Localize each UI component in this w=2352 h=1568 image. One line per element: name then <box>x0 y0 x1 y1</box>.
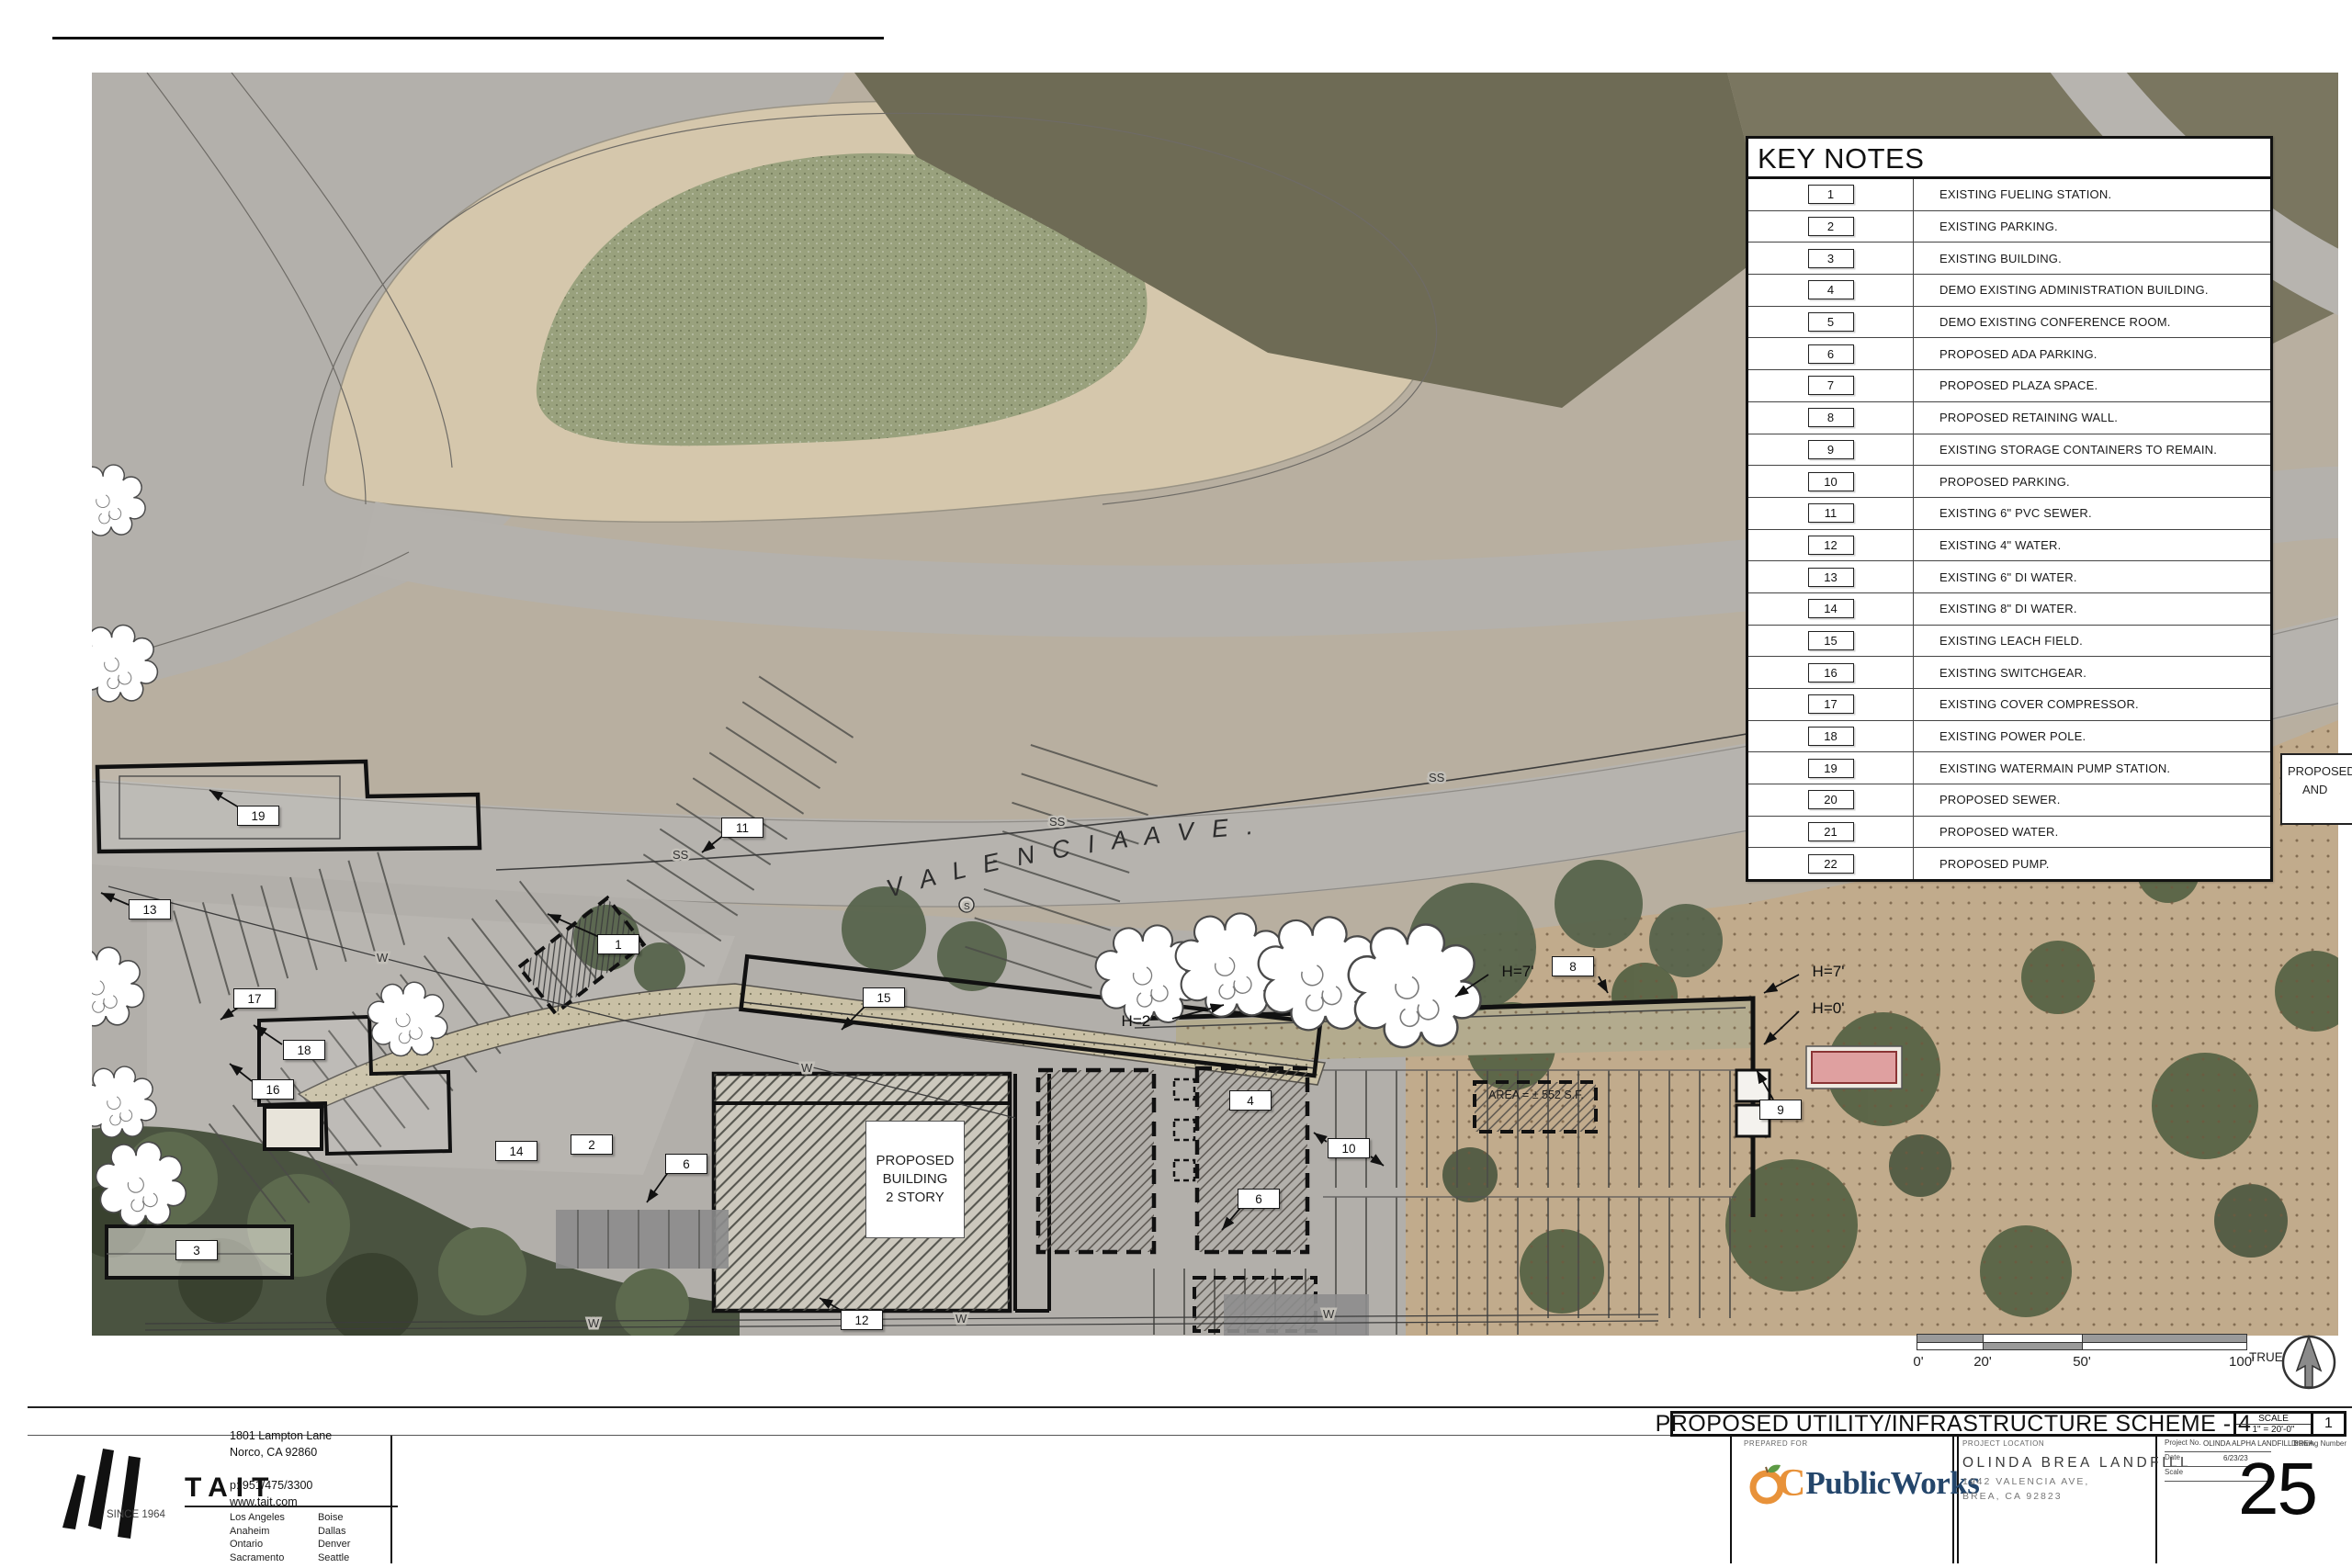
keynote-number-cell: 16 <box>1748 657 1914 688</box>
keynote-number: 13 <box>1808 568 1854 587</box>
keynote-ref-18: 18 <box>283 1040 325 1060</box>
keynote-text: EXISTING BUILDING. <box>1914 243 2270 274</box>
keynote-number-cell: 6 <box>1748 338 1914 369</box>
svg-text:W: W <box>801 1061 813 1075</box>
tait-website[interactable]: www.tait.com <box>230 1495 312 1511</box>
proposed-building-label-line3: 2 STORY <box>886 1189 944 1207</box>
manhole-label: S <box>964 902 970 912</box>
keynote-row: 13EXISTING 6" DI WATER. <box>1748 560 2270 592</box>
keynote-ref-4: 4 <box>1229 1090 1272 1111</box>
keynote-number: 8 <box>1808 408 1854 427</box>
keynote-number-cell: 4 <box>1748 275 1914 306</box>
proposed-building-label-line2: BUILDING <box>883 1170 948 1189</box>
plaza-area-label: AREA = ± 552 S.F. <box>1476 1080 1597 1132</box>
tait-cities-left: Los Angeles Anaheim Ontario Sacramento <box>230 1511 285 1565</box>
keynote-text: PROPOSED PUMP. <box>1914 848 2270 879</box>
keynote-ref-10: 10 <box>1328 1138 1370 1158</box>
tait-city: Ontario <box>230 1538 285 1551</box>
keynote-text: PROPOSED WATER. <box>1914 817 2270 848</box>
keynote-number-cell: 21 <box>1748 817 1914 848</box>
partial-note-box: PROPOSED AND <box>2280 753 2352 825</box>
keynote-number: 2 <box>1808 217 1854 236</box>
keynote-number: 6 <box>1808 344 1854 364</box>
partial-note-line1: PROPOSED <box>2288 762 2352 781</box>
partial-note-line2: AND <box>2288 781 2352 799</box>
keynote-row: 14EXISTING 8" DI WATER. <box>1748 592 2270 625</box>
tait-cities-right: Boise Dallas Denver Seattle <box>318 1511 350 1565</box>
scale-label: SCALE <box>2236 1414 2311 1424</box>
north-arrow-icon <box>2278 1332 2339 1393</box>
project-address-line1: 1942 VALENCIA AVE, <box>1962 1474 2152 1489</box>
keynote-row: 17EXISTING COVER COMPRESSOR. <box>1748 688 2270 720</box>
keynote-number: 20 <box>1808 790 1854 809</box>
keynote-text: EXISTING SWITCHGEAR. <box>1914 657 2270 688</box>
keynote-row: 1EXISTING FUELING STATION. <box>1748 179 2270 210</box>
scale-value: 1" = 20'-0" <box>2236 1424 2311 1435</box>
keynote-row: 12EXISTING 4" WATER. <box>1748 529 2270 561</box>
svg-text:W: W <box>955 1312 967 1325</box>
ada-parking-stalls <box>556 1210 729 1269</box>
keynote-number-cell: 9 <box>1748 434 1914 466</box>
keynote-number-cell: 12 <box>1748 530 1914 561</box>
keynote-number-cell: 2 <box>1748 211 1914 243</box>
tait-city: Seattle <box>318 1551 350 1565</box>
bottom-section-divider <box>28 1406 2352 1408</box>
keynote-ref-16: 16 <box>252 1079 294 1100</box>
keynote-text: EXISTING LEACH FIELD. <box>1914 626 2270 657</box>
keynote-number-cell: 11 <box>1748 498 1914 529</box>
keynote-number-cell: 22 <box>1748 848 1914 879</box>
building-switchgear <box>265 1107 322 1149</box>
keynote-number: 21 <box>1808 822 1854 841</box>
tait-address-line1: 1801 Lampton Lane <box>230 1428 332 1445</box>
key-notes-table: KEY NOTES 1EXISTING FUELING STATION. 2EX… <box>1746 136 2273 882</box>
keynote-row: 4DEMO EXISTING ADMINISTRATION BUILDING. <box>1748 274 2270 306</box>
keynote-row: 21PROPOSED WATER. <box>1748 816 2270 848</box>
keynote-text: PROPOSED PARKING. <box>1914 466 2270 497</box>
oc-public-works-logo: C PublicWorks <box>1747 1461 1979 1506</box>
keynote-number-cell: 13 <box>1748 561 1914 592</box>
key-notes-rows: 1EXISTING FUELING STATION. 2EXISTING PAR… <box>1748 179 2270 879</box>
tait-address: 1801 Lampton Lane Norco, CA 92860 <box>230 1428 332 1461</box>
tait-city: Boise <box>318 1511 350 1525</box>
scale-bar: 0' 20' 50' 100' <box>1917 1334 2247 1372</box>
keynote-number: 11 <box>1808 503 1854 523</box>
keynote-number: 14 <box>1808 599 1854 618</box>
tait-city: Sacramento <box>230 1551 285 1565</box>
scale-tick-0: 0' <box>1913 1354 1923 1370</box>
scale-tick-20: 20' <box>1973 1354 1992 1370</box>
proposed-pump-highlight <box>1812 1052 1896 1083</box>
detail-number-cell: 1 <box>2313 1411 2346 1437</box>
keynote-number: 10 <box>1808 472 1854 491</box>
keynote-text: PROPOSED PLAZA SPACE. <box>1914 370 2270 401</box>
scale-tick-50: 50' <box>2073 1354 2091 1370</box>
keynote-text: EXISTING FUELING STATION. <box>1914 179 2270 210</box>
keynote-ref-14: 14 <box>495 1141 537 1161</box>
keynote-text: EXISTING 6" DI WATER. <box>1914 561 2270 592</box>
oc-logo-wordmark: PublicWorks <box>1805 1465 1979 1502</box>
tait-since: SINCE 1964 <box>107 1509 165 1520</box>
key-notes-title: KEY NOTES <box>1748 139 2270 179</box>
keynote-number: 15 <box>1808 631 1854 650</box>
drawing-title: PROPOSED UTILITY/INFRASTRUCTURE SCHEME -… <box>1670 1411 2236 1437</box>
keynote-row: 3EXISTING BUILDING. <box>1748 242 2270 274</box>
wall-height-label-h7-center: H=7' <box>1502 963 1534 981</box>
keynote-number: 9 <box>1808 440 1854 459</box>
proposed-building-label: PROPOSED BUILDING 2 STORY <box>865 1121 965 1238</box>
keynote-row: 15EXISTING LEACH FIELD. <box>1748 625 2270 657</box>
keynote-number-cell: 14 <box>1748 593 1914 625</box>
keynote-row: 22PROPOSED PUMP. <box>1748 847 2270 879</box>
ada-parking-pad-east <box>1224 1294 1369 1336</box>
keynote-text: EXISTING PARKING. <box>1914 211 2270 243</box>
svg-text:W: W <box>1323 1307 1335 1321</box>
keynote-ref-3: 3 <box>175 1240 218 1260</box>
demo-admin-building-west <box>1038 1070 1154 1252</box>
wall-height-label-h7-right: H=7' <box>1813 963 1845 981</box>
svg-text:SS: SS <box>1049 815 1066 829</box>
drawing-sheet: { "page": { "key_notes": { "title": "KEY… <box>0 0 2352 1568</box>
keynote-number: 19 <box>1808 759 1854 778</box>
keynote-text: EXISTING WATERMAIN PUMP STATION. <box>1914 752 2270 784</box>
oc-logo-c: C <box>1778 1461 1805 1506</box>
keynote-ref-12: 12 <box>841 1310 883 1330</box>
title-block-divider-1 <box>390 1436 392 1563</box>
tait-city: Anaheim <box>230 1525 285 1539</box>
keynote-number: 12 <box>1808 536 1854 555</box>
svg-text:W: W <box>377 951 389 964</box>
keynote-number-cell: 7 <box>1748 370 1914 401</box>
keynote-text: EXISTING 8" DI WATER. <box>1914 593 2270 625</box>
scale-bar-ticks: 0' 20' 50' 100' <box>1917 1354 2247 1372</box>
tait-city: Dallas <box>318 1525 350 1539</box>
keynote-number-cell: 19 <box>1748 752 1914 784</box>
keynote-number-cell: 1 <box>1748 179 1914 210</box>
keynote-text: EXISTING STORAGE CONTAINERS TO REMAIN. <box>1914 434 2270 466</box>
keynote-row: 16EXISTING SWITCHGEAR. <box>1748 656 2270 688</box>
tait-logo-icon <box>55 1438 175 1540</box>
keynote-ref-1: 1 <box>597 934 639 954</box>
keynote-text: EXISTING POWER POLE. <box>1914 721 2270 752</box>
keynote-number-cell: 8 <box>1748 402 1914 434</box>
prepared-for-label: PREPARED FOR <box>1744 1439 1808 1448</box>
keynote-ref-2: 2 <box>571 1134 613 1155</box>
keynote-number-cell: 3 <box>1748 243 1914 274</box>
tait-city: Denver <box>318 1538 350 1551</box>
tait-address-line2: Norco, CA 92860 <box>230 1445 332 1461</box>
keynote-text: EXISTING 6" PVC SEWER. <box>1914 498 2270 529</box>
svg-text:SS: SS <box>673 848 689 862</box>
keynote-ref-19: 19 <box>237 806 279 826</box>
keynote-number: 7 <box>1808 376 1854 395</box>
title-block-divider-2 <box>1730 1436 1732 1563</box>
keynote-text: EXISTING COVER COMPRESSOR. <box>1914 689 2270 720</box>
drawing-scale-cell: SCALE 1" = 20'-0" <box>2236 1411 2313 1437</box>
keynote-ref-8: 8 <box>1552 956 1594 976</box>
prepared-for-block: PREPARED FOR C PublicWorks <box>1736 1436 1948 1563</box>
keynote-row: 11EXISTING 6" PVC SEWER. <box>1748 497 2270 529</box>
drawing-title-bar: PROPOSED UTILITY/INFRASTRUCTURE SCHEME -… <box>1670 1411 2346 1437</box>
keynote-row: 7PROPOSED PLAZA SPACE. <box>1748 369 2270 401</box>
keynote-number: 16 <box>1808 663 1854 682</box>
project-info-block: Project No. OLINDA ALPHA LANDFILL BREA D… <box>2165 1436 2348 1563</box>
keynote-number: 18 <box>1808 727 1854 746</box>
keynote-number-cell: 15 <box>1748 626 1914 657</box>
tait-phone: p: 951/475/3300 <box>230 1478 312 1495</box>
keynote-row: 19EXISTING WATERMAIN PUMP STATION. <box>1748 751 2270 784</box>
date-label: Date <box>2165 1453 2180 1461</box>
keynote-text: EXISTING 4" WATER. <box>1914 530 2270 561</box>
keynote-number-cell: 20 <box>1748 784 1914 816</box>
keynote-number-cell: 10 <box>1748 466 1914 497</box>
keynote-ref-15: 15 <box>863 987 905 1008</box>
drawing-number-label: Drawing Number <box>2291 1439 2346 1448</box>
keynote-number: 5 <box>1808 312 1854 332</box>
sheet-top-border <box>52 37 884 39</box>
tait-contact: p: 951/475/3300 www.tait.com <box>230 1478 312 1510</box>
keynote-row: 8PROPOSED RETAINING WALL. <box>1748 401 2270 434</box>
keynote-text: PROPOSED RETAINING WALL. <box>1914 402 2270 434</box>
project-location-label: PROJECT LOCATION <box>1962 1436 2152 1448</box>
keynote-number-cell: 17 <box>1748 689 1914 720</box>
keynote-row: 2EXISTING PARKING. <box>1748 210 2270 243</box>
keynote-number-cell: 5 <box>1748 307 1914 338</box>
keynote-ref-6b: 6 <box>1238 1189 1280 1209</box>
scale-row-label: Scale <box>2165 1468 2183 1476</box>
proposed-building-hatch <box>714 1074 1010 1311</box>
wall-height-label-h0-right: H=0' <box>1813 999 1845 1018</box>
keynote-number: 4 <box>1808 280 1854 299</box>
keynote-text: PROPOSED ADA PARKING. <box>1914 338 2270 369</box>
project-no-label: Project No. <box>2165 1438 2201 1447</box>
keynote-text: DEMO EXISTING ADMINISTRATION BUILDING. <box>1914 275 2270 306</box>
keynote-row: 20PROPOSED SEWER. <box>1748 784 2270 816</box>
keynote-ref-13: 13 <box>129 899 171 919</box>
tait-cities: Los Angeles Anaheim Ontario Sacramento B… <box>230 1511 350 1565</box>
keynote-ref-17: 17 <box>233 988 276 1009</box>
project-location-block: PROJECT LOCATION OLINDA BREA LANDFILL 19… <box>1962 1436 2152 1563</box>
keynote-ref-9: 9 <box>1759 1100 1802 1120</box>
scale-bar-graphic <box>1917 1334 2247 1350</box>
keynote-number-cell: 18 <box>1748 721 1914 752</box>
keynote-text: DEMO EXISTING CONFERENCE ROOM. <box>1914 307 2270 338</box>
keynote-number: 3 <box>1808 249 1854 268</box>
keynote-row: 9EXISTING STORAGE CONTAINERS TO REMAIN. <box>1748 434 2270 466</box>
svg-text:W: W <box>588 1316 600 1330</box>
sheet-number: 25 <box>2238 1452 2316 1526</box>
keynote-row: 6PROPOSED ADA PARKING. <box>1748 337 2270 369</box>
keynote-row: 10PROPOSED PARKING. <box>1748 465 2270 497</box>
keynote-number: 17 <box>1808 694 1854 714</box>
wall-height-label-h2: H=2' <box>1122 1012 1154 1031</box>
keynote-text: PROPOSED SEWER. <box>1914 784 2270 816</box>
proposed-building-label-line1: PROPOSED <box>876 1152 954 1170</box>
keynote-ref-6: 6 <box>665 1154 707 1174</box>
keynote-ref-11: 11 <box>721 818 763 838</box>
project-address: 1942 VALENCIA AVE, BREA, CA 92823 <box>1962 1474 2152 1505</box>
tait-city: Los Angeles <box>230 1511 285 1525</box>
project-address-line2: BREA, CA 92823 <box>1962 1489 2152 1504</box>
keynote-row: 5DEMO EXISTING CONFERENCE ROOM. <box>1748 306 2270 338</box>
tait-title-block: TAIT SINCE 1964 1801 Lampton Lane Norco,… <box>33 1436 388 1563</box>
plaza-area-text: AREA = ± 552 S.F. <box>1488 1089 1584 1132</box>
keynote-row: 18EXISTING POWER POLE. <box>1748 720 2270 752</box>
keynote-number: 22 <box>1808 854 1854 874</box>
project-name: OLINDA BREA LANDFILL <box>1962 1455 2152 1472</box>
svg-text:SS: SS <box>1429 771 1445 784</box>
keynote-number: 1 <box>1808 185 1854 204</box>
